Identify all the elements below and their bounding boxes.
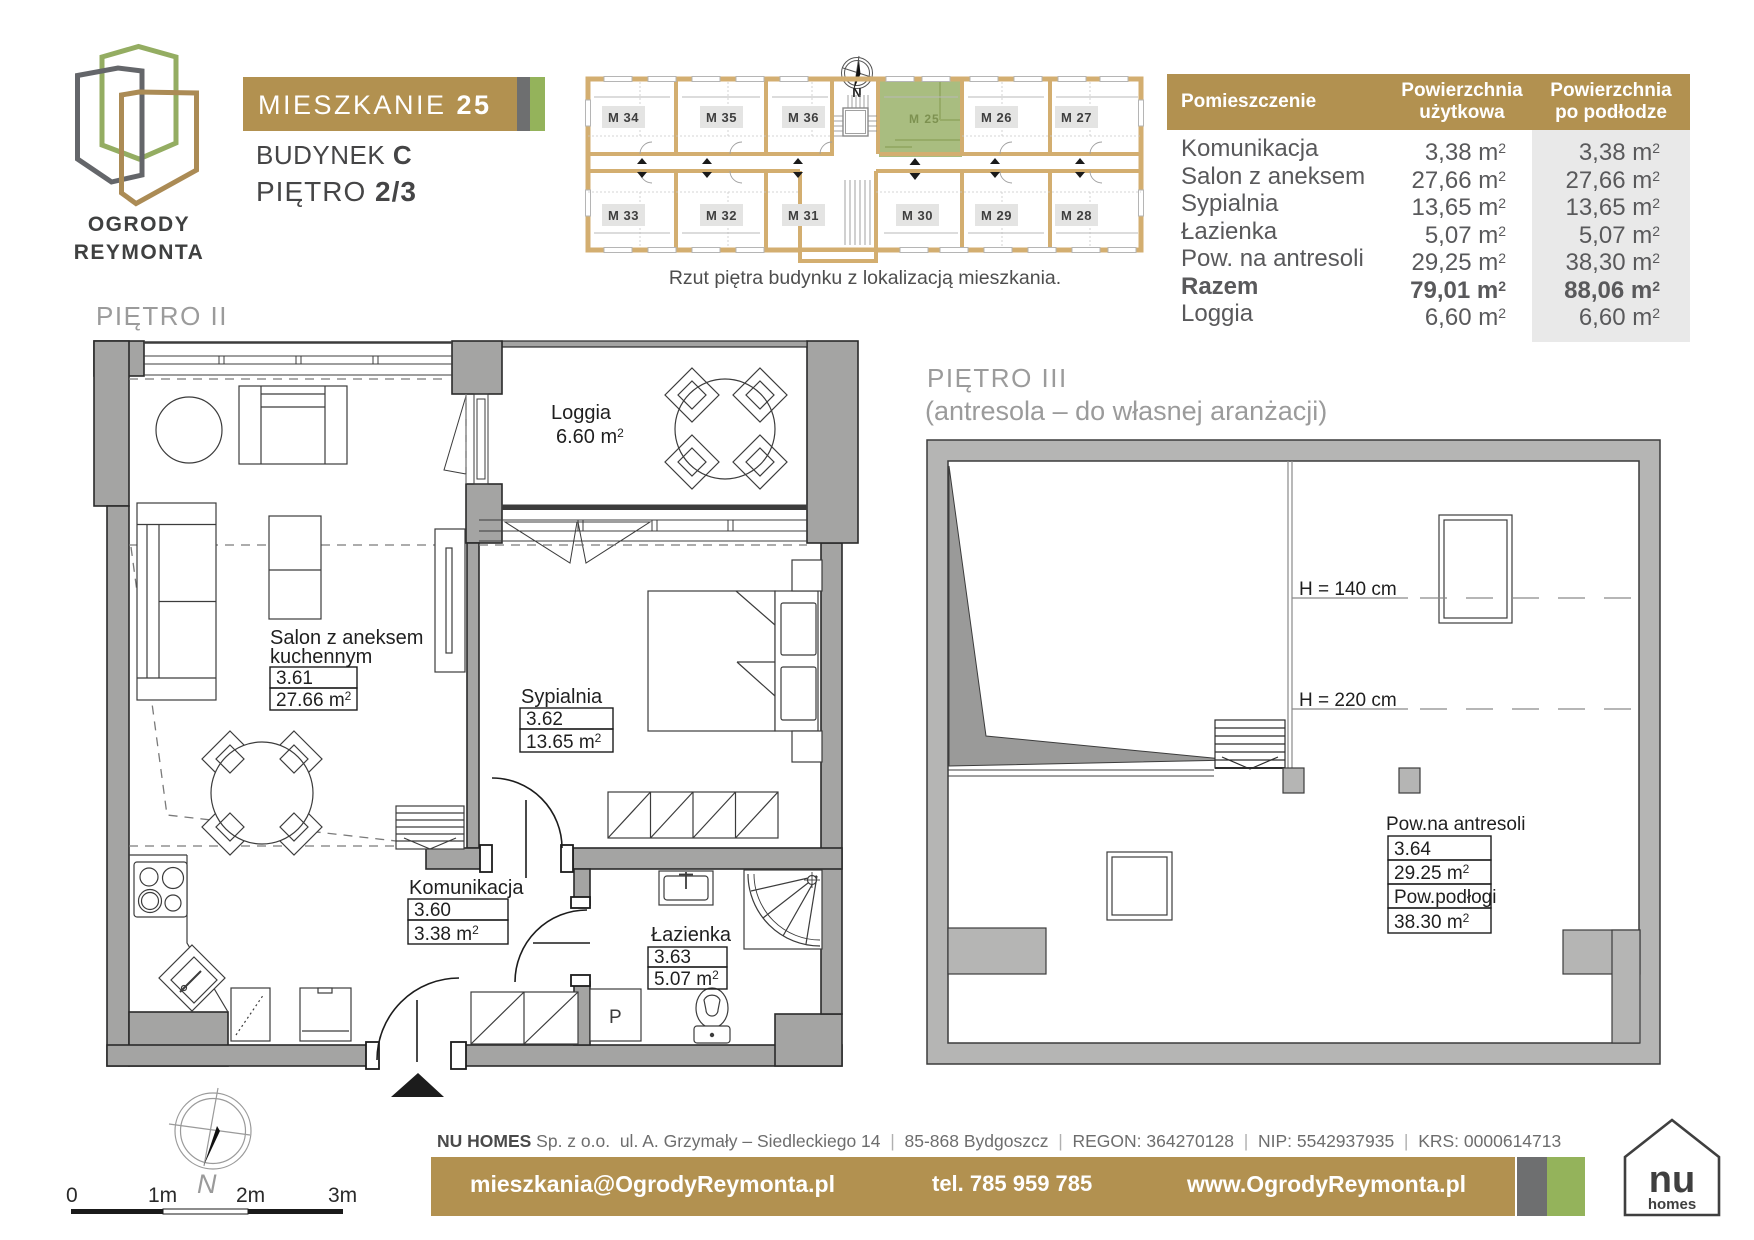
svg-text:M 32: M 32 [706,208,737,223]
svg-text:Pow.podłogi: Pow.podłogi [1394,887,1496,908]
svg-text:M 27: M 27 [1061,110,1092,125]
svg-text:M 34: M 34 [608,110,639,125]
svg-text:38.30 m2: 38.30 m2 [1394,911,1470,933]
svg-text:homes: homes [1648,1196,1696,1213]
svg-text:Łazienka: Łazienka [651,924,732,946]
svg-text:3.63: 3.63 [654,947,691,968]
svg-text:M 28: M 28 [1061,208,1092,223]
svg-text:27.66 m2: 27.66 m2 [276,689,352,711]
svg-text:3.38 m2: 3.38 m2 [414,923,479,945]
svg-text:Pow.na antresoli: Pow.na antresoli [1386,814,1525,835]
svg-text:3.64: 3.64 [1394,839,1431,860]
svg-text:3.60: 3.60 [414,900,451,921]
svg-text:1m: 1m [148,1184,177,1207]
svg-text:3.61: 3.61 [276,668,313,689]
svg-text:P: P [609,1007,622,1028]
svg-text:M 30: M 30 [902,208,933,223]
svg-text:kuchennym: kuchennym [270,646,372,668]
svg-text:13.65 m2: 13.65 m2 [526,731,602,753]
svg-text:0: 0 [66,1184,78,1207]
svg-text:M 26: M 26 [981,110,1012,125]
svg-text:H = 220 cm: H = 220 cm [1299,690,1397,711]
svg-text:Komunikacja: Komunikacja [409,877,524,899]
svg-text:3m: 3m [328,1184,357,1207]
svg-text:29.25 m2: 29.25 m2 [1394,862,1470,884]
svg-text:2m: 2m [236,1184,265,1207]
svg-text:M 35: M 35 [706,110,737,125]
svg-text:3.62: 3.62 [526,709,563,730]
svg-text:6.60 m2: 6.60 m2 [556,426,624,448]
svg-text:M 29: M 29 [981,208,1012,223]
svg-text:Loggia: Loggia [551,402,612,424]
svg-text:M 25: M 25 [909,112,940,126]
svg-text:5.07 m2: 5.07 m2 [654,968,719,990]
svg-text:M 36: M 36 [788,110,819,125]
svg-text:H = 140 cm: H = 140 cm [1299,579,1397,600]
svg-text:nu: nu [1649,1159,1695,1201]
svg-text:Sypialnia: Sypialnia [521,686,603,708]
svg-text:M 31: M 31 [788,208,819,223]
svg-text:M 33: M 33 [608,208,639,223]
